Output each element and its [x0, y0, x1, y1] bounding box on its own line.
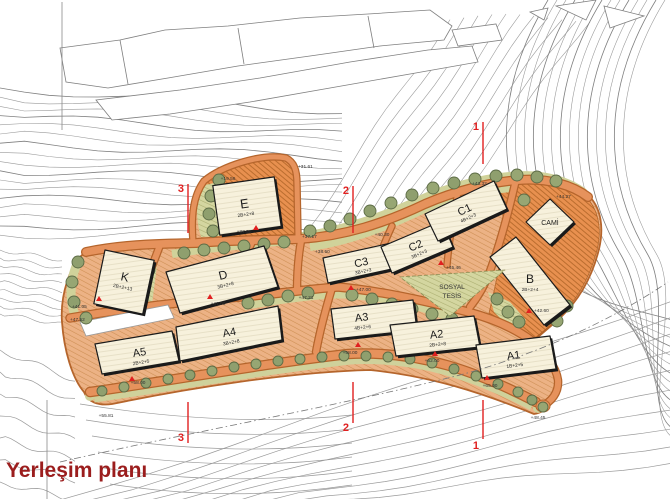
spot-level: +37.50 [237, 229, 252, 235]
spot-level: +38.50 [315, 249, 330, 255]
tree-icon [385, 197, 397, 209]
building-B-sub: 2B+2+4 [522, 287, 539, 293]
tree-icon [448, 177, 460, 189]
tree-icon [531, 171, 543, 183]
section-label-3-top: 3 [178, 183, 184, 195]
tree-icon [513, 316, 525, 328]
tree-icon [185, 370, 195, 380]
building-B-label: B [526, 272, 534, 286]
tree-icon [344, 213, 356, 225]
building-A1-label: A1 [506, 349, 521, 363]
tree-icon [295, 354, 305, 364]
spot-level: +47.21 [299, 295, 314, 301]
tree-icon [366, 293, 378, 305]
spot-level: +58.00 [343, 350, 358, 356]
section-label-2-top: 2 [343, 185, 349, 197]
spot-level: +47.52 [70, 317, 85, 323]
spot-level: +62.00 [425, 358, 440, 364]
tree-icon [203, 208, 215, 220]
site-plan-canvas: E 2B+2+8 K 2B+2+13 D 3B+2+8 A5 2B+2+5 A4… [0, 0, 670, 499]
tree-icon [119, 382, 129, 392]
tree-icon [278, 236, 290, 248]
tree-icon [491, 293, 503, 305]
tree-icon [490, 170, 502, 182]
spot-level: +44.27 [556, 194, 571, 200]
spot-level: +55.81 [99, 413, 114, 419]
building-A5-label: A5 [132, 346, 147, 360]
site-plan-drawing: E 2B+2+8 K 2B+2+13 D 3B+2+8 A5 2B+2+5 A4… [0, 0, 670, 499]
spot-level: +65.00 [483, 383, 498, 389]
spot-level: +48.45 [531, 415, 546, 421]
spot-level: +31.61 [298, 164, 313, 170]
spot-level: +47.00 [356, 287, 371, 293]
tree-icon [207, 225, 219, 237]
tree-icon [262, 294, 274, 306]
section-label-2-bottom: 2 [343, 422, 349, 434]
tree-icon [163, 374, 173, 384]
building-E: E 2B+2+8 [213, 177, 284, 237]
spot-level: +45.46 [446, 265, 461, 271]
tree-icon [324, 220, 336, 232]
spot-level: +37.17 [302, 234, 317, 240]
spot-level: +40.30 [375, 232, 390, 238]
existing-building-outline [452, 24, 502, 46]
tree-icon [178, 247, 190, 259]
tree-icon [449, 364, 459, 374]
spot-level: +19.56 [221, 176, 236, 182]
tree-icon [364, 205, 376, 217]
tree-icon [426, 308, 438, 320]
building-K: K 2B+2+13 [94, 250, 157, 316]
existing-building-outline [530, 8, 548, 20]
tree-icon [273, 356, 283, 366]
page-title: Yerleşim planı [6, 459, 147, 483]
tree-icon [317, 352, 327, 362]
tree-icon [406, 189, 418, 201]
tree-icon [72, 256, 84, 268]
tree-icon [550, 175, 562, 187]
tree-icon [66, 276, 78, 288]
existing-building-outline [556, 0, 596, 20]
spot-level: +43.32 [472, 181, 487, 187]
spot-level: +47.00 [211, 301, 226, 307]
tree-icon [251, 359, 261, 369]
tree-icon [207, 366, 217, 376]
sosyal-tesis-label-1: SOSYAL [439, 284, 465, 291]
tree-icon [538, 402, 548, 412]
tree-icon [282, 290, 294, 302]
building-A2-label: A2 [429, 328, 444, 341]
existing-buildings [60, 0, 644, 120]
sosyal-tesis-label-2: TESİS [443, 291, 462, 300]
tree-icon [518, 194, 530, 206]
spot-level: +41.05 [72, 304, 87, 310]
tree-icon [511, 169, 523, 181]
tree-icon [427, 182, 439, 194]
building-CAMI-label: CAMİ [541, 218, 559, 227]
building-A3-label: A3 [354, 311, 369, 324]
section-label-1-bottom: 1 [473, 440, 479, 452]
tree-icon [471, 371, 481, 381]
tree-icon [229, 362, 239, 372]
tree-icon [513, 387, 523, 397]
tree-icon [527, 395, 537, 405]
tree-icon [383, 352, 393, 362]
spot-level: +42.60 [534, 308, 549, 314]
section-label-3-bottom: 3 [178, 432, 184, 444]
tree-icon [218, 242, 230, 254]
tree-icon [361, 351, 371, 361]
tree-icon [502, 306, 514, 318]
building-A4-label: A4 [222, 326, 238, 340]
section-label-1-top: 1 [473, 121, 479, 133]
spot-level: +58.00 [131, 380, 146, 386]
tree-icon [97, 386, 107, 396]
tree-icon [198, 244, 210, 256]
